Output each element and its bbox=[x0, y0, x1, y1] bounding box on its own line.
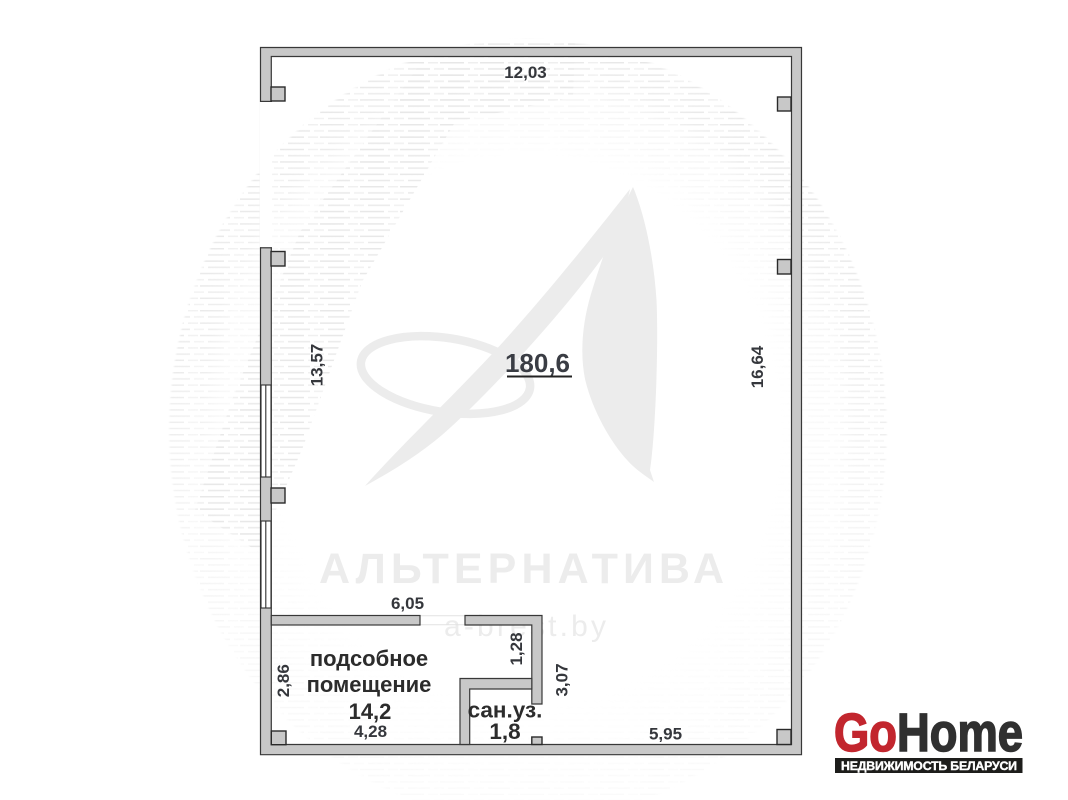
svg-text:помещение: помещение bbox=[307, 672, 432, 697]
svg-text:1,8: 1,8 bbox=[489, 719, 520, 744]
svg-text:14,2: 14,2 bbox=[349, 699, 392, 724]
svg-text:НЕДВИЖИМОСТЬ БЕЛАРУСИ: НЕДВИЖИМОСТЬ БЕЛАРУСИ bbox=[841, 759, 1017, 773]
svg-text:3,07: 3,07 bbox=[553, 663, 572, 696]
svg-text:180,6: 180,6 bbox=[505, 348, 570, 378]
svg-text:5,95: 5,95 bbox=[649, 725, 682, 744]
svg-text:12,03: 12,03 bbox=[504, 63, 547, 82]
svg-text:GoHome: GoHome bbox=[834, 703, 1023, 763]
svg-text:13,57: 13,57 bbox=[308, 344, 327, 387]
svg-text:4,28: 4,28 bbox=[354, 722, 387, 741]
svg-text:1,28: 1,28 bbox=[507, 632, 526, 665]
svg-text:16,64: 16,64 bbox=[748, 345, 767, 388]
svg-text:2,86: 2,86 bbox=[274, 664, 293, 697]
svg-text:подсобное: подсобное bbox=[310, 646, 428, 671]
svg-text:6,05: 6,05 bbox=[391, 594, 424, 613]
svg-text:АЛЬТЕРНАТИВА: АЛЬТЕРНАТИВА bbox=[319, 545, 724, 593]
